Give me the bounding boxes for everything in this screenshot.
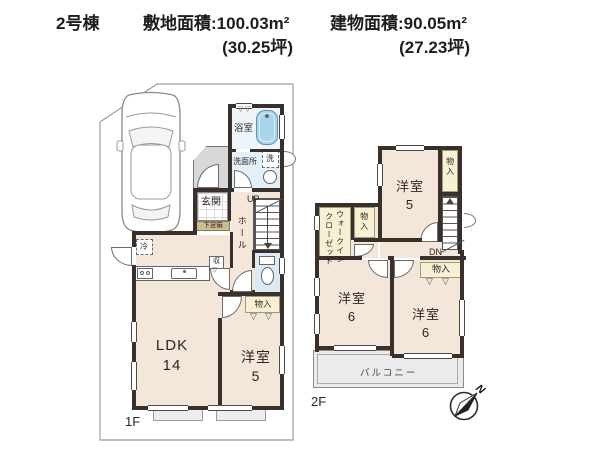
wall (132, 265, 136, 322)
wall (458, 250, 464, 254)
bath-window-fold-icon: ▽ (238, 106, 243, 114)
sink-faucet (183, 270, 186, 273)
wic-label-line1: ウォークイン (335, 210, 345, 264)
room-name: LDK (156, 337, 188, 354)
floor-plan-page: 2号棟 敷地面積:100.03m² (30.25坪) 建物面積:90.05m² … (0, 0, 600, 450)
cupboard-fold-icon: ▽ (212, 267, 217, 275)
window (396, 145, 424, 151)
wall (376, 346, 392, 350)
storage-2f-left-label: 物入 (359, 212, 369, 232)
wall (460, 250, 464, 300)
wall (280, 104, 284, 115)
wall (132, 406, 148, 410)
room-name: 洋室 (338, 291, 366, 306)
land-area: 敷地面積:100.03m² (143, 14, 289, 34)
room-name: 洋室 (396, 179, 424, 194)
wall (315, 296, 319, 314)
fold-door-icon: ▽ (442, 276, 449, 287)
room-size: 14 (163, 357, 182, 374)
room-size: 5 (252, 368, 261, 384)
wall (424, 146, 462, 150)
wall (390, 260, 394, 356)
room-size: 5 (406, 197, 414, 212)
wall (378, 238, 422, 242)
building-area-tsubo: (27.23坪) (330, 38, 470, 58)
stairs-window-arc (464, 213, 476, 228)
wall (132, 342, 136, 362)
room-size: 6 (422, 325, 430, 340)
wall (188, 406, 208, 410)
wash-basin (263, 170, 277, 184)
window (314, 314, 320, 334)
window (208, 405, 252, 411)
wall (252, 250, 284, 253)
fold-door-icon: ▽ (265, 311, 272, 322)
wall (230, 232, 233, 268)
stairs-arrow-up (446, 198, 454, 204)
compass-icon: N (446, 380, 490, 426)
staircase-2f (442, 196, 458, 250)
wall (250, 149, 281, 152)
land-area-tsubo: (30.25坪) (143, 38, 293, 58)
wall (315, 346, 334, 350)
window (279, 115, 285, 139)
window (131, 362, 137, 390)
stove-burner (146, 271, 150, 275)
fridge-label: 冷 (140, 242, 148, 252)
storage-2f-right-label: 物入 (424, 264, 458, 275)
wall (392, 354, 404, 358)
wall (231, 149, 236, 152)
dn-label: DN (429, 247, 442, 258)
window (279, 258, 285, 274)
window (314, 216, 320, 230)
stairs-arrow-line (267, 206, 268, 244)
wall (132, 231, 136, 247)
cupboard-label: 収 (213, 258, 220, 266)
wall (351, 207, 354, 240)
wall (315, 203, 319, 216)
room-name: 洋室 (241, 349, 271, 365)
window (148, 405, 188, 411)
entrance-label: 玄関 (201, 197, 221, 209)
up-label: UP (247, 194, 260, 205)
wall (280, 274, 284, 346)
window (334, 345, 376, 351)
storage-2f-top-label: 物入 (445, 157, 455, 177)
balcony-label: バルコニー (360, 368, 417, 379)
wic-label-line2: クローゼット (324, 212, 334, 266)
wall (252, 188, 284, 192)
building-number: 2号棟 (56, 14, 99, 34)
bath-label: 浴室 (234, 123, 253, 134)
room-size: 6 (348, 309, 356, 324)
bedroom6b-label: 洋室 6 (400, 306, 452, 341)
stove-burner (140, 271, 144, 275)
wall (228, 104, 232, 192)
stairs-arrow-down (264, 243, 272, 249)
toilet-bowl (261, 267, 274, 285)
bedroom1f-label: 洋室 5 (228, 348, 284, 386)
bath-window-fold-icon: ▽ (245, 106, 250, 114)
wall (458, 146, 462, 252)
floor1-label: 1F (125, 414, 140, 430)
bedroom6a-label: 洋室 6 (326, 290, 378, 325)
wall (132, 231, 197, 235)
wall (378, 146, 382, 164)
faucet-dot (265, 114, 269, 118)
window (404, 353, 452, 359)
wall (252, 406, 284, 410)
fold-door-icon: ▽ (426, 276, 433, 287)
window (459, 300, 465, 336)
window (314, 278, 320, 296)
fold-door-icon: ▽ (250, 311, 257, 322)
window (131, 322, 137, 342)
bedroom5-label: 洋室 5 (382, 178, 438, 213)
wall (315, 203, 378, 207)
wall (460, 336, 464, 358)
shoe-box-label: 下足箱 (198, 222, 228, 230)
car-icon (116, 89, 186, 237)
washer-label: 洗 (266, 154, 274, 164)
washroom-label: 洗面所 (233, 157, 257, 167)
building-area: 建物面積:90.05m² (330, 14, 467, 34)
wall (193, 188, 197, 235)
wall (354, 238, 378, 242)
wall (218, 318, 222, 406)
ldk-label: LDK 14 (142, 336, 202, 377)
wall (218, 292, 284, 296)
wall (442, 192, 458, 196)
toilet-tank (259, 256, 275, 265)
wall (228, 192, 231, 221)
floor2-label: 2F (311, 394, 326, 410)
storage-1f-label: 物入 (247, 299, 279, 309)
wall (252, 253, 255, 268)
hall-label: ホール (236, 216, 247, 252)
room-name: 洋室 (412, 307, 440, 322)
wall (252, 290, 255, 292)
wall (315, 230, 319, 278)
